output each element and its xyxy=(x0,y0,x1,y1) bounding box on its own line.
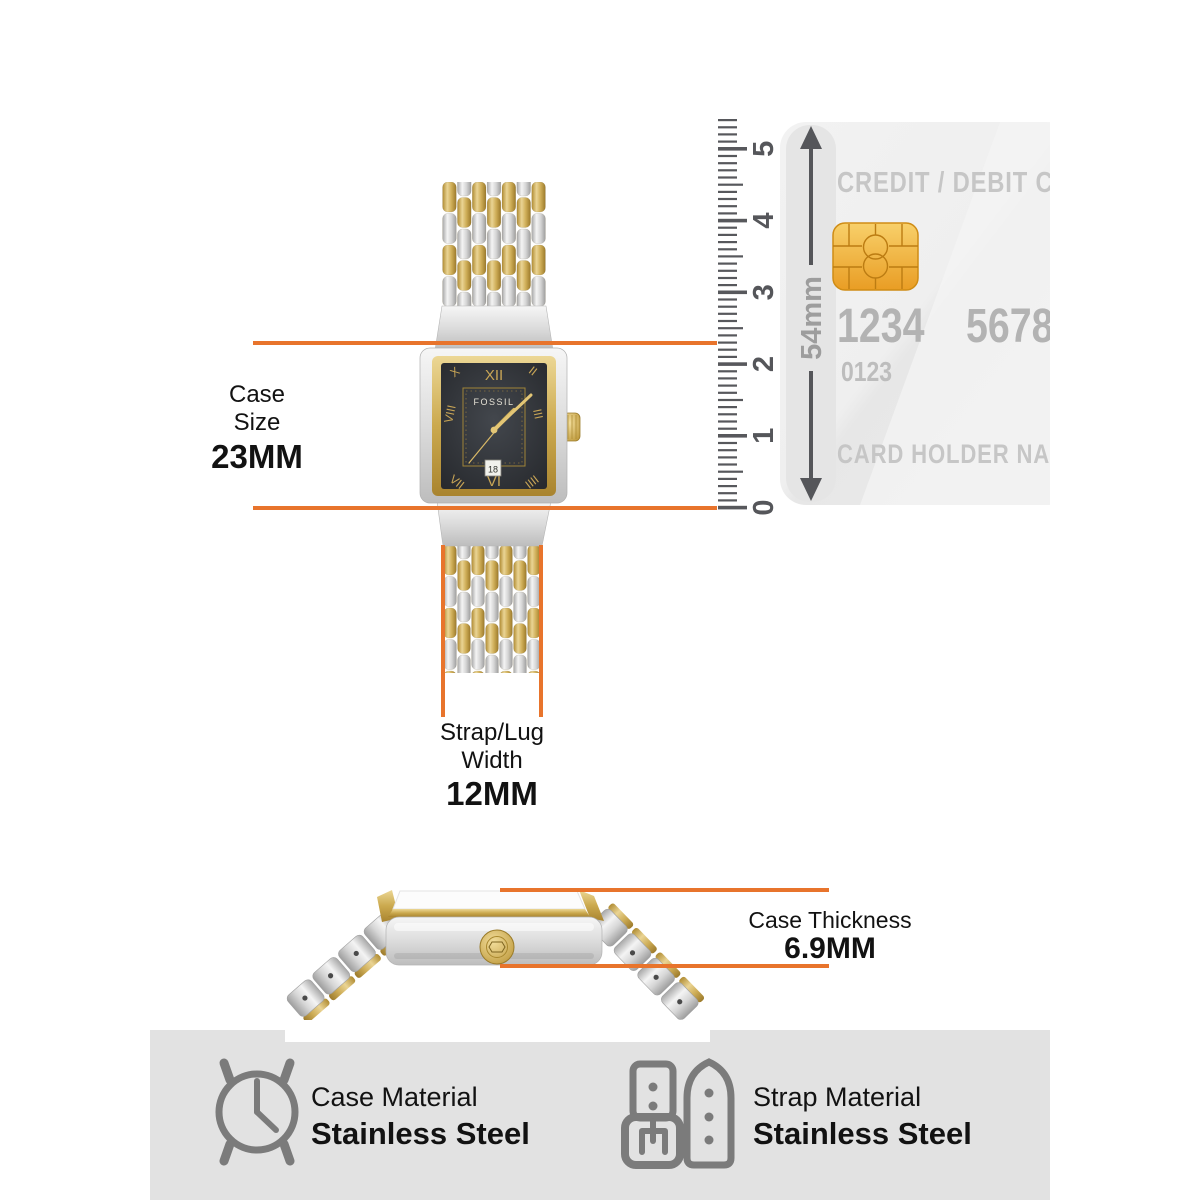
bracelet-link xyxy=(458,624,471,654)
bracelet-link xyxy=(528,671,541,701)
scale-card-group: 54mm CREDIT / DEBIT CARD 1234 5678 0123 … xyxy=(780,122,1107,505)
ruler-tick xyxy=(718,420,737,422)
ruler-tick xyxy=(718,277,737,279)
ruler-tick xyxy=(718,356,737,358)
ruler-tick xyxy=(718,306,737,308)
bracelet-link xyxy=(443,214,457,244)
ruler-tick xyxy=(718,313,737,315)
bracelet-link xyxy=(502,245,516,275)
bracelet-link xyxy=(486,655,499,685)
bracelet-link xyxy=(472,245,486,275)
crown-side-view xyxy=(480,930,514,964)
bracelet-link xyxy=(457,198,471,228)
strap-width-label-2: Width xyxy=(461,747,522,774)
strap-width-value: 12MM xyxy=(446,775,538,812)
ruler-tick xyxy=(718,485,737,487)
bracelet-link xyxy=(532,277,546,307)
bracelet-link xyxy=(514,624,527,654)
card-chip-icon xyxy=(833,223,918,290)
card-number-small: 0123 xyxy=(841,357,892,388)
card-height-label: 54mm xyxy=(796,276,828,360)
case-size-label-2: Size xyxy=(234,409,281,436)
case-material-label: Case Material xyxy=(311,1082,478,1112)
bracelet-link xyxy=(500,545,513,575)
bracelet-link xyxy=(532,182,546,212)
bracelet-link xyxy=(458,655,471,685)
ruler-tick xyxy=(718,162,737,164)
bracelet-link xyxy=(486,561,499,591)
bracelet-link xyxy=(444,577,457,607)
ruler-tick xyxy=(718,320,737,322)
ruler-number: 0 xyxy=(748,500,780,516)
ruler-tick xyxy=(718,492,737,494)
bracelet-link xyxy=(486,624,499,654)
bracelet-link xyxy=(528,608,541,638)
side-photo-overlap xyxy=(285,1020,710,1042)
ruler-tick xyxy=(718,370,737,372)
side-bezel-band xyxy=(388,909,590,917)
bracelet-link xyxy=(517,166,531,196)
bracelet-link xyxy=(487,261,501,291)
ruler-tick xyxy=(718,399,743,401)
card-number-left: 1234 xyxy=(837,299,925,353)
ruler-tick xyxy=(718,406,737,408)
ruler-tick xyxy=(718,126,737,128)
card-number-right: 5678 xyxy=(966,299,1054,353)
bracelet-link xyxy=(528,545,541,575)
bracelet-link xyxy=(528,640,541,670)
ruler: 012345 xyxy=(718,119,780,516)
ruler-tick xyxy=(718,463,737,465)
ruler-number: 5 xyxy=(748,141,780,157)
ruler-tick xyxy=(718,169,737,171)
bracelet-link xyxy=(528,577,541,607)
bracelet-link xyxy=(500,608,513,638)
bracelet-link xyxy=(443,245,457,275)
ruler-tick xyxy=(718,198,737,200)
ruler-tick xyxy=(718,255,743,257)
strap-material-label: Strap Material xyxy=(753,1082,921,1112)
ruler-tick xyxy=(718,478,737,480)
ruler-tick xyxy=(718,141,737,143)
ruler-tick xyxy=(718,392,737,394)
ruler-tick xyxy=(718,270,737,272)
ruler-tick xyxy=(718,184,743,186)
ruler-tick xyxy=(718,263,737,265)
bracelet-link xyxy=(444,640,457,670)
ruler-tick xyxy=(718,342,737,344)
ruler-tick xyxy=(718,176,737,178)
ruler-tick xyxy=(718,377,737,379)
bracelet-link xyxy=(486,592,499,622)
case-material-value: Stainless Steel xyxy=(311,1116,530,1151)
ruler-tick xyxy=(718,241,737,243)
strap-material-value: Stainless Steel xyxy=(753,1116,972,1151)
bracelet-link xyxy=(444,608,457,638)
watch-case-icon xyxy=(219,1063,295,1161)
bracelet-link xyxy=(502,214,516,244)
bracelet-link xyxy=(472,671,485,701)
bracelet-link xyxy=(517,198,531,228)
bracelet-link xyxy=(444,545,457,575)
bracelet-link xyxy=(487,229,501,259)
brand-logo: FOSSIL xyxy=(473,397,514,407)
ruler-tick xyxy=(718,385,737,387)
strap-width-label-1: Strap/Lug xyxy=(440,719,544,746)
ruler-tick xyxy=(718,284,737,286)
bracelet-link xyxy=(457,261,471,291)
ruler-tick xyxy=(718,349,737,351)
ruler-number: 1 xyxy=(748,428,780,444)
ruler-tick xyxy=(718,413,737,415)
numeral-xii: XII xyxy=(485,367,503,384)
card-holder: CARD HOLDER NAME xyxy=(837,440,1085,470)
ruler-number: 3 xyxy=(748,284,780,300)
bracelet-link xyxy=(472,214,486,244)
ruler-tick xyxy=(718,442,737,444)
ruler-tick xyxy=(718,155,737,157)
bracelet-link xyxy=(443,277,457,307)
ruler-tick xyxy=(718,298,737,300)
bracelet-link xyxy=(532,245,546,275)
ruler-tick xyxy=(718,248,737,250)
ruler-tick xyxy=(718,234,737,236)
bracelet-link xyxy=(458,592,471,622)
bracelet-link xyxy=(444,671,457,701)
ruler-tick xyxy=(718,434,747,438)
ruler-tick xyxy=(718,205,737,207)
ruler-tick xyxy=(718,219,747,223)
ruler-tick xyxy=(718,133,737,135)
card-title: CREDIT / DEBIT CARD xyxy=(837,166,1107,199)
bracelet-link xyxy=(457,166,471,196)
bracelet-link xyxy=(487,198,501,228)
ruler-tick xyxy=(718,449,737,451)
ruler-tick xyxy=(718,227,737,229)
ruler-number: 2 xyxy=(748,356,780,372)
product-spec-image: 54mm CREDIT / DEBIT CARD 1234 5678 0123 … xyxy=(0,0,1200,1200)
bracelet-link xyxy=(514,561,527,591)
bracelet-link xyxy=(487,166,501,196)
ruler-tick xyxy=(718,147,747,151)
bracelet-link xyxy=(472,182,486,212)
bracelet-link xyxy=(443,182,457,212)
ruler-tick xyxy=(718,362,747,366)
bracelet-link xyxy=(514,655,527,685)
ruler-tick xyxy=(718,191,737,193)
bracelet-link xyxy=(500,671,513,701)
case-size-label-1: Case xyxy=(229,381,285,408)
bracelet-link xyxy=(472,608,485,638)
date-value: 18 xyxy=(488,465,498,475)
bracelet-link xyxy=(500,577,513,607)
bracelet-link xyxy=(502,182,516,212)
ruler-number: 4 xyxy=(748,213,780,229)
ruler-tick xyxy=(718,327,743,329)
bracelet-link xyxy=(457,229,471,259)
ruler-tick xyxy=(718,428,737,430)
ruler-tick xyxy=(718,456,737,458)
bracelet-link xyxy=(517,229,531,259)
ruler-tick xyxy=(718,119,737,121)
bracelet-link xyxy=(472,577,485,607)
case-size-value: 23MM xyxy=(211,438,303,475)
case-thickness-label: Case Thickness xyxy=(748,907,911,933)
ruler-tick xyxy=(718,334,737,336)
bracelet-link xyxy=(472,545,485,575)
ruler-tick xyxy=(718,506,747,510)
side-glass xyxy=(393,891,585,909)
case-thickness-value: 6.9MM xyxy=(784,932,876,965)
bracelet-link xyxy=(532,214,546,244)
ruler-tick xyxy=(718,291,747,295)
bracelet-link xyxy=(472,640,485,670)
bracelet-link xyxy=(517,261,531,291)
bracelet-link xyxy=(500,640,513,670)
spec-canvas: 54mm CREDIT / DEBIT CARD 1234 5678 0123 … xyxy=(0,0,1200,1200)
bracelet-link xyxy=(458,561,471,591)
ruler-tick xyxy=(718,499,737,501)
bracelet-link xyxy=(472,277,486,307)
thickness-labels: Case Thickness 6.9MM xyxy=(748,907,911,965)
bracelet-link xyxy=(514,592,527,622)
bracelet-link xyxy=(502,277,516,307)
bracelet-bottom xyxy=(444,529,541,701)
ruler-tick xyxy=(718,471,743,473)
ruler-tick xyxy=(718,212,737,214)
